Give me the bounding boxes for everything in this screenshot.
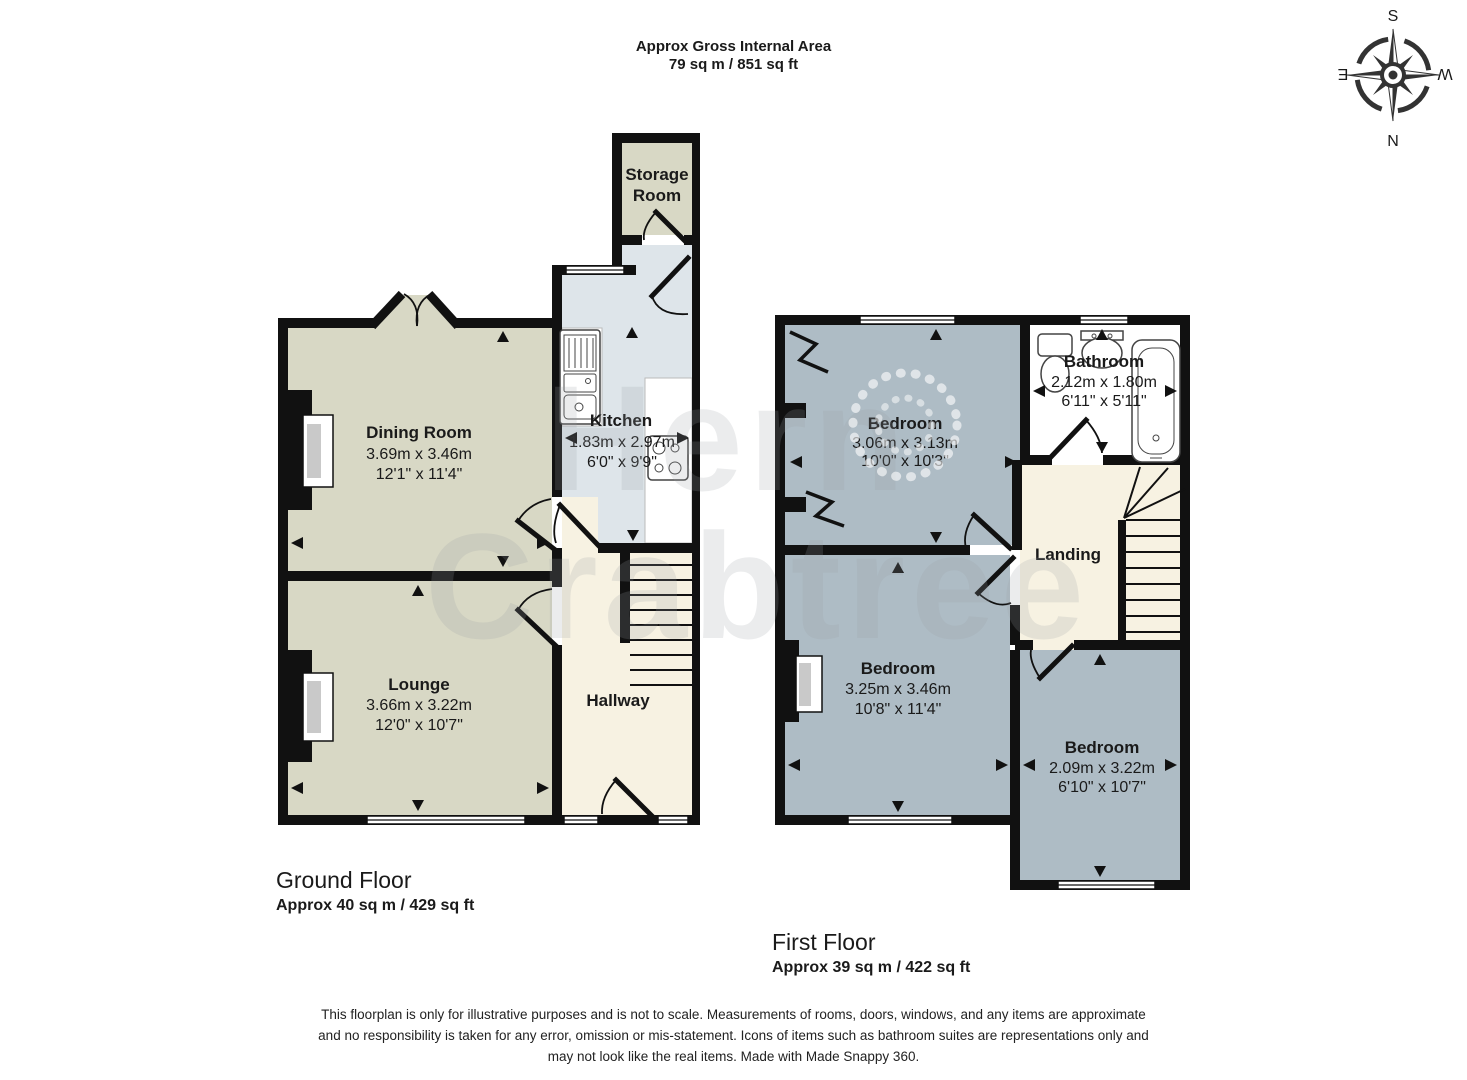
storage-room-label-line2: Room [633, 186, 681, 205]
disclaimer-line3: may not look like the real items. Made w… [0, 1046, 1467, 1067]
lounge-label: Lounge [388, 675, 449, 694]
bedroom2-label: Bedroom [861, 659, 936, 678]
bedroom1-label: Bedroom [868, 414, 943, 433]
ground-floor-title: Ground Floor [276, 866, 474, 894]
landing-label: Landing [1035, 545, 1101, 564]
compass-top-label: S [1388, 8, 1399, 25]
compass-rose-icon: S N E W [1335, 3, 1455, 153]
bathroom-label: Bathroom [1064, 352, 1144, 371]
compass-left-label: E [1338, 65, 1349, 82]
bathroom-window [1080, 316, 1128, 324]
dining-room-imperial: 12'1" x 11'4" [376, 466, 463, 483]
compass-bottom-label: N [1387, 133, 1399, 150]
bathroom-metric: 2.12m x 1.80m [1051, 374, 1157, 391]
front-door-sidelight-right [658, 816, 688, 824]
bedroom2-imperial: 10'8" x 11'4" [855, 701, 942, 718]
lounge-metric: 3.66m x 3.22m [366, 697, 472, 714]
bedroom1-metric: 3.06m x 3.13m [852, 435, 958, 452]
header-area-value: 79 sq m / 851 sq ft [0, 56, 1467, 74]
first-floor-title-block: First Floor Approx 39 sq m / 422 sq ft [772, 928, 970, 980]
header-title: Approx Gross Internal Area [0, 38, 1467, 56]
ground-floor-area: Approx 40 sq m / 429 sq ft [276, 894, 474, 918]
compass-right-label: W [1437, 65, 1453, 82]
floorplan-page: Approx Gross Internal Area 79 sq m / 851… [0, 0, 1467, 1080]
disclaimer: This floorplan is only for illustrative … [0, 1004, 1467, 1067]
ground-floor-plan: Storage Room Dining Room 3.69m x 3.46m 1… [276, 133, 700, 825]
first-floor-area: Approx 39 sq m / 422 sq ft [772, 956, 970, 980]
dining-room-metric: 3.69m x 3.46m [366, 446, 472, 463]
bedroom3-metric: 2.09m x 3.22m [1049, 760, 1155, 777]
bedroom3-label: Bedroom [1065, 738, 1140, 757]
kitchen-window [566, 266, 624, 274]
lounge-imperial: 12'0" x 10'7" [375, 717, 463, 734]
bathroom-imperial: 6'11" x 5'11" [1061, 393, 1146, 410]
disclaimer-line1: This floorplan is only for illustrative … [0, 1004, 1467, 1025]
storage-room-label-line1: Storage [625, 165, 688, 184]
bedroom2-metric: 3.25m x 3.46m [845, 681, 951, 698]
kitchen-sink-icon [560, 330, 600, 424]
dining-room-label: Dining Room [366, 423, 472, 442]
ground-floor-title-block: Ground Floor Approx 40 sq m / 429 sq ft [276, 866, 474, 918]
first-floor-plan: Bedroom 3.06m x 3.13m 10'0" x 10'3" Bath… [775, 315, 1190, 895]
gross-internal-area-header: Approx Gross Internal Area 79 sq m / 851… [0, 38, 1467, 74]
first-floor-title: First Floor [772, 928, 970, 956]
kitchen-label: Kitchen [590, 411, 652, 430]
bedroom2-window [848, 816, 952, 824]
bedroom3-imperial: 6'10" x 10'7" [1058, 779, 1146, 796]
kitchen-imperial: 6'0" x 9'9" [587, 454, 657, 471]
hallway-label: Hallway [586, 691, 650, 710]
front-door-sidelight-left [564, 816, 598, 824]
disclaimer-line2: and no responsibility is taken for any e… [0, 1025, 1467, 1046]
kitchen-metric: 1.83m x 2.97m [569, 434, 675, 451]
bedroom1-window [860, 316, 955, 324]
bedroom3-window [1058, 881, 1155, 889]
lounge-window [367, 816, 525, 824]
bedroom1-imperial: 10'0" x 10'3" [861, 453, 949, 470]
